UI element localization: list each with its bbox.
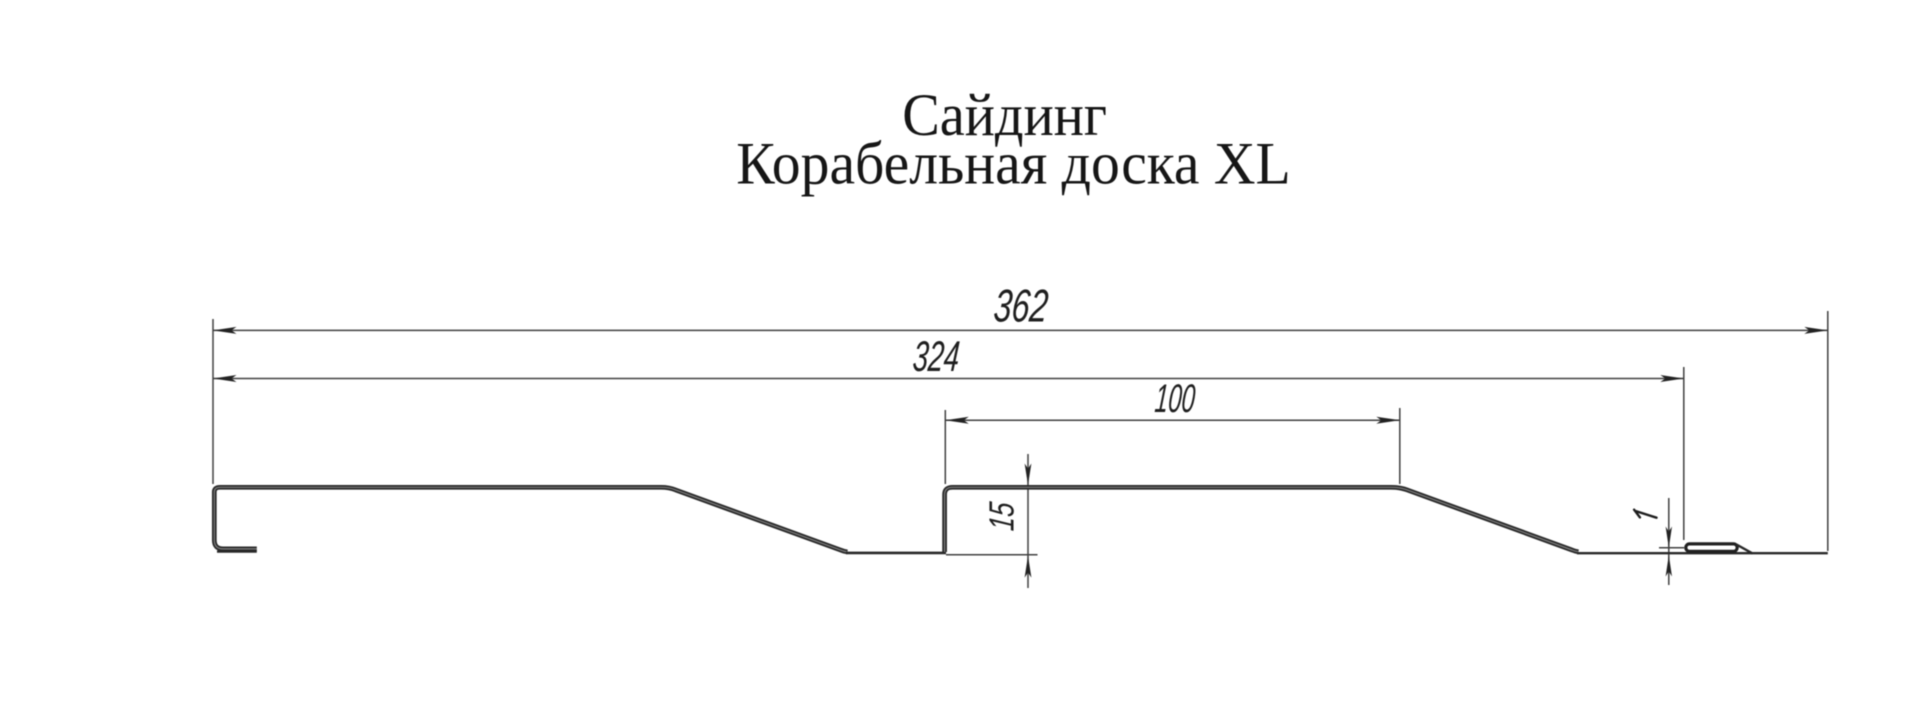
svg-text:362: 362 <box>992 281 1051 332</box>
svg-text:Корабельная доска XL: Корабельная доска XL <box>736 130 1291 196</box>
svg-text:15: 15 <box>983 500 1022 533</box>
svg-text:324: 324 <box>911 332 962 381</box>
svg-text:100: 100 <box>1153 377 1197 422</box>
